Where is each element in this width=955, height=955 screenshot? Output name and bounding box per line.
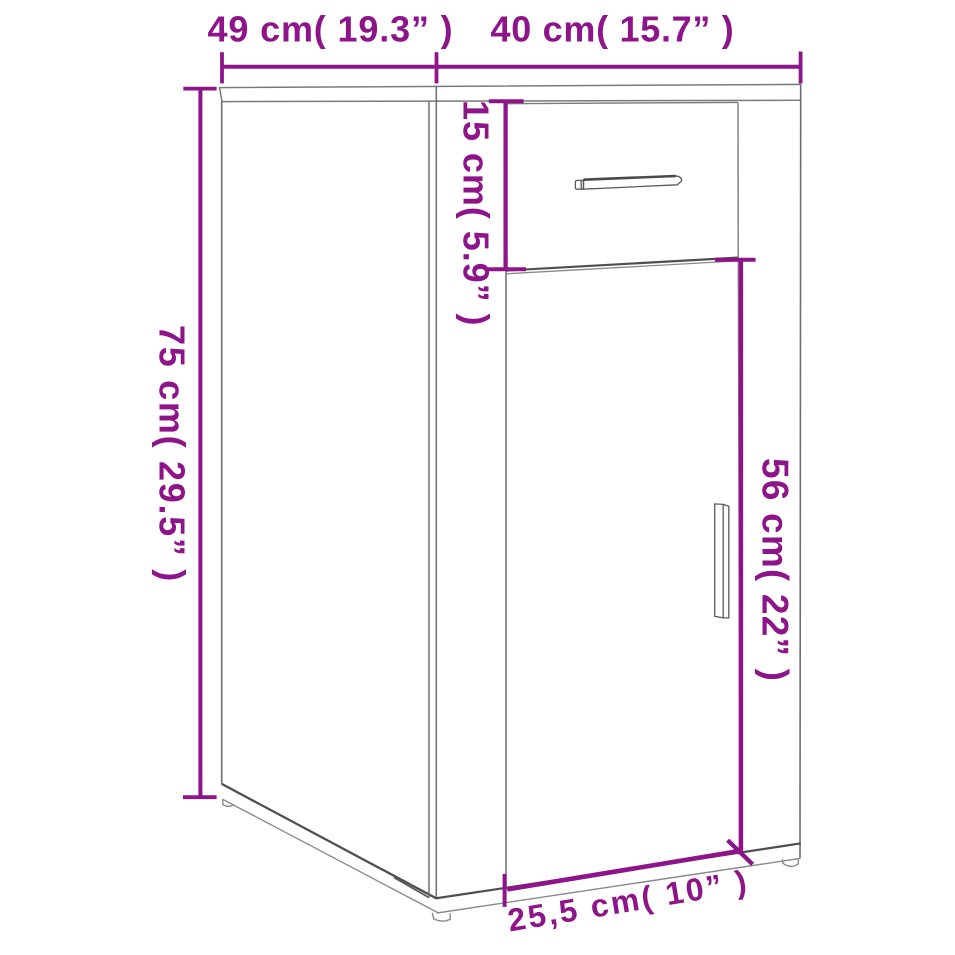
svg-text:40 cm( 15.7” ): 40 cm( 15.7” )	[491, 8, 735, 49]
svg-text:15 cm( 5.9” ): 15 cm( 5.9” )	[455, 100, 496, 326]
svg-text:75 cm( 29.5” ): 75 cm( 29.5” )	[152, 325, 193, 583]
svg-text:49 cm( 19.3” ): 49 cm( 19.3” )	[207, 8, 453, 49]
svg-text:56 cm( 22” ): 56 cm( 22” )	[755, 458, 796, 682]
